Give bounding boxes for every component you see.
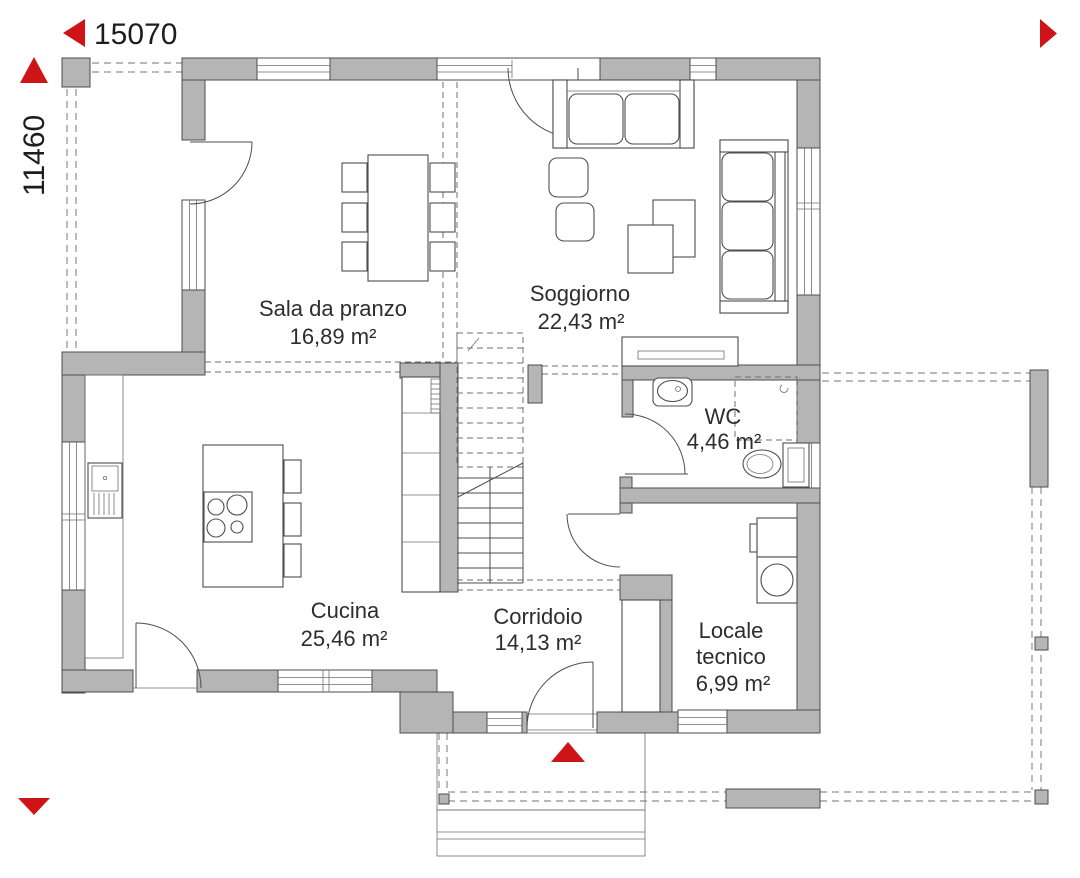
dimension-arrow-right-icon — [1040, 19, 1057, 48]
room-label-locale-tecnico-2: tecnico — [696, 644, 766, 669]
window — [487, 712, 522, 733]
kitchen-furniture — [85, 375, 440, 658]
wall-segment — [622, 365, 820, 380]
floor-plan: 15070 11460 Sala da pranzo 16,89 m² Sogg… — [0, 0, 1080, 878]
wall-segment — [660, 600, 672, 712]
room-label-sala-da-pranzo: Sala da pranzo — [259, 296, 407, 321]
technical-room-appliances — [750, 518, 797, 603]
window — [62, 442, 85, 590]
room-area-corridoio: 14,13 m² — [495, 630, 582, 655]
window — [690, 58, 716, 80]
entrance-porch — [437, 733, 645, 856]
wall-segment — [522, 712, 527, 733]
locale-tecnico-door-panel — [622, 600, 660, 712]
island-stools — [284, 460, 301, 577]
dimension-arrow-up-icon — [20, 57, 48, 83]
wall-segment — [62, 670, 133, 692]
wall-segment — [797, 488, 820, 733]
room-label-cucina: Cucina — [311, 598, 380, 623]
wall-segment — [453, 712, 487, 733]
dimension-arrow-left-icon — [63, 19, 85, 47]
room-area-cucina: 25,46 m² — [301, 626, 388, 651]
wall-segment — [197, 670, 278, 692]
tall-cabinet — [402, 377, 440, 592]
kitchen-island — [203, 445, 283, 587]
room-area-soggiorno: 22,43 m² — [538, 309, 625, 334]
wall-segment — [372, 670, 437, 692]
dining-table — [368, 155, 428, 281]
entrance-arrow-icon — [551, 742, 585, 762]
pergola-low-wall — [726, 789, 820, 808]
wall-segment — [620, 575, 672, 600]
room-label-wc: WC — [705, 404, 742, 429]
pergola-post — [1035, 790, 1048, 804]
glazed-entry-panel — [437, 58, 600, 80]
tv-sideboard — [622, 337, 738, 366]
wall-segment — [600, 58, 690, 80]
wall-segment — [440, 363, 458, 592]
sofa-two-seat — [553, 80, 694, 148]
sofa-three-seat — [720, 140, 788, 313]
room-area-locale-tecnico: 6,99 m² — [696, 671, 771, 696]
wall-segment — [62, 352, 205, 375]
dimension-arrow-down-icon — [18, 798, 50, 815]
carport-pillar — [62, 58, 90, 87]
door-kitchen — [133, 623, 201, 688]
room-label-corridoio: Corridoio — [493, 604, 582, 629]
wall-segment — [620, 488, 820, 503]
door-dining — [190, 142, 252, 204]
pouf — [549, 158, 588, 197]
wall-segment — [182, 80, 205, 140]
pergola-pier — [1030, 370, 1048, 487]
wall-segment — [597, 712, 678, 733]
wc-sink — [653, 378, 692, 406]
dimension-height-label: 11460 — [18, 115, 51, 196]
staircase — [457, 333, 523, 583]
wall-segment — [330, 58, 437, 80]
wall-segment — [716, 58, 820, 80]
wall-segment — [182, 290, 205, 352]
wall-segment — [727, 710, 820, 733]
pouf — [556, 203, 594, 241]
dimension-markers — [18, 19, 1057, 815]
porch-post — [439, 794, 449, 804]
window — [797, 148, 820, 295]
kitchen-sink — [88, 463, 122, 518]
window — [182, 200, 205, 290]
room-area-wc: 4,46 m² — [687, 429, 762, 454]
dining-set — [342, 155, 455, 281]
dimension-width-label: 15070 — [94, 18, 177, 51]
pergola-post — [1035, 637, 1048, 650]
door-entrance — [527, 662, 597, 730]
room-label-locale-tecnico-1: Locale — [699, 618, 764, 643]
coffee-table — [628, 225, 673, 273]
window — [257, 58, 330, 80]
wall-segment — [400, 692, 453, 733]
boiler-unit — [757, 518, 797, 557]
wall-segment — [528, 365, 542, 403]
wall-segment — [622, 380, 633, 417]
room-label-soggiorno: Soggiorno — [530, 281, 630, 306]
washing-machine — [757, 557, 797, 603]
door-wc — [625, 414, 688, 474]
wall-segment — [182, 58, 257, 80]
door-corridor — [567, 514, 620, 567]
wall-segment — [62, 375, 85, 442]
floor-plan-page: 15070 11460 Sala da pranzo 16,89 m² Sogg… — [0, 0, 1080, 878]
window — [678, 710, 727, 733]
window — [278, 670, 372, 692]
room-area-sala-da-pranzo: 16,89 m² — [290, 324, 377, 349]
wall-segment — [797, 80, 820, 148]
